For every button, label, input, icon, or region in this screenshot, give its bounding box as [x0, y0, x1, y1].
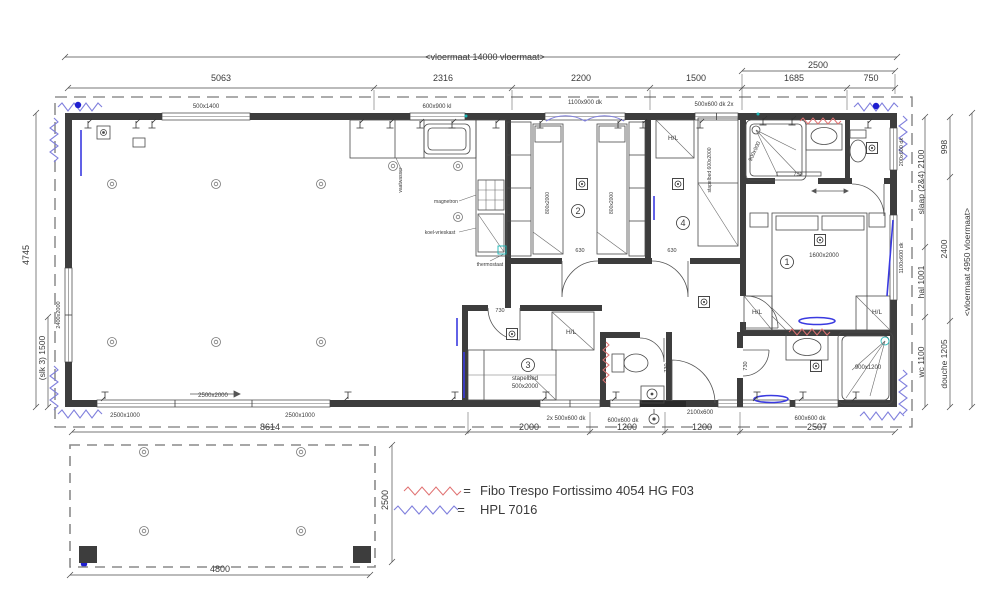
label-dim-wc-1100: wc 1100: [916, 346, 926, 378]
label-bed4-stapelbed: stapelbed 600x2000: [707, 147, 713, 192]
label-dim-8614: 8614: [260, 422, 280, 432]
dimension-lines: [33, 54, 975, 578]
wc-room: [612, 354, 664, 403]
label-legend-eq-1: =: [463, 483, 471, 498]
switch-icon: [612, 392, 620, 401]
blue-marker-dot: [75, 102, 81, 108]
ceiling-light-icon: [140, 448, 149, 457]
label-legend-eq-2: =: [457, 502, 465, 517]
ceiling-light-icon: [454, 162, 463, 171]
label-win-2500x1000-a: 2500x1000: [110, 413, 140, 419]
ceiling-light-icon: [108, 180, 117, 189]
label-dim-2400: 2400: [939, 239, 949, 258]
label-hl-room4: H/L: [668, 135, 679, 142]
label-bed2-right: 800x2000: [609, 192, 615, 214]
labels-layer: <vloermaat 14000 vloermaat>2500506323162…: [21, 52, 972, 574]
label-dim-floor-depth: <vloermaat 4950 vloermaat>: [962, 208, 972, 316]
terrace: [70, 445, 375, 567]
label-dim-hal-1001: hal 1001: [916, 265, 926, 298]
label-door-630-room4: 630: [667, 248, 676, 254]
switch-icon: [85, 119, 93, 128]
label-win-1100x600: 1100x600 dk: [899, 242, 905, 273]
label-bed2-left: 800x2000: [545, 192, 551, 214]
label-shower-bottom-size: 900x1200: [855, 365, 882, 371]
floorplan-svg: <vloermaat 14000 vloermaat>2500506323162…: [0, 0, 1000, 595]
hpl-zigzag: [50, 366, 58, 410]
kitchen: [350, 120, 506, 261]
label-win-500x600-2x: 500x600 dk 2x: [694, 102, 733, 108]
terrace-post: [353, 546, 371, 563]
terrace-post: [79, 546, 97, 563]
label-lbl-thermostaat: thermostaat: [477, 262, 504, 268]
hpl-zigzag: [899, 370, 907, 414]
label-door-730-wc: 730: [664, 363, 670, 372]
label-dim-2507: 2507: [807, 422, 827, 432]
hpl-zigzag: [58, 410, 102, 418]
smoke-detector-icon: [867, 143, 878, 154]
ceiling-lights: [108, 162, 463, 536]
label-lbl-koelvrieskast: koel-vrieskast: [425, 230, 456, 236]
label-dim-4745: 4745: [21, 245, 31, 265]
label-dim-2316: 2316: [433, 73, 453, 83]
label-dim-998: 998: [939, 140, 949, 154]
label-win-2x500x600: 2x 500x600 dk: [546, 416, 586, 422]
hpl-zigzag: [50, 118, 58, 162]
switch-icon: [537, 119, 545, 128]
label-win-2500x2000: 2500x2000: [198, 393, 228, 399]
floorplan-drawing: <vloermaat 14000 vloermaat>2500506323162…: [0, 0, 1000, 595]
label-legend-hpl: HPL 7016: [480, 502, 537, 517]
label-win-1100x900: 1100x900 dk: [568, 100, 603, 106]
label-dim-5063: 5063: [211, 73, 231, 83]
switch-icon: [133, 119, 141, 128]
switch-icon: [451, 392, 459, 401]
label-bed3-size: 500x2000: [512, 384, 539, 390]
ceiling-light-icon: [317, 180, 326, 189]
switch-icon: [149, 119, 157, 128]
legend-red-zigzag: [404, 487, 461, 495]
label-bed3-stapelbed: stapelbed: [512, 376, 538, 382]
label-room-2-number: 2: [575, 206, 580, 216]
label-win-2500x1000-b: 2500x1000: [285, 413, 315, 419]
smoke-detector-icon: [507, 329, 518, 340]
label-dim-750: 750: [863, 73, 878, 83]
ceiling-light-icon: [108, 338, 117, 347]
label-door-730-douche: 730: [743, 361, 749, 370]
label-dim-2000: 2000: [519, 422, 539, 432]
label-dim-slaap24-2100: slaap (2&4) 2100: [916, 149, 926, 214]
label-dim-4800: 4800: [210, 564, 230, 574]
ceiling-light-icon: [389, 162, 398, 171]
label-bed1-size: 1600x2000: [809, 253, 839, 259]
label-dim-2500-top: 2500: [808, 60, 828, 70]
legend-blue-zigzag: [394, 506, 458, 514]
label-dim-2200: 2200: [571, 73, 591, 83]
label-win-600x600-a: 600x600 dk: [607, 418, 639, 424]
switch-icon: [101, 392, 109, 401]
label-dim-1500: 1500: [686, 73, 706, 83]
label-win-500x1400: 500x1400: [193, 104, 220, 110]
bedroom-2-furniture: [507, 116, 645, 256]
ceiling-light-icon: [140, 527, 149, 536]
label-door-630-room2: 630: [575, 248, 584, 254]
meter-cabinet: [97, 126, 145, 147]
switch-icon: [799, 392, 807, 401]
radiator-mark: [799, 318, 835, 325]
label-dim-slk3-1500: (slk 3) 1500: [37, 336, 47, 381]
label-room-1-number: 1: [784, 257, 789, 267]
smoke-detector-icon: [577, 179, 588, 190]
hpl-zigzag: [860, 412, 904, 420]
ceiling-light-icon: [317, 338, 326, 347]
bedroom-1-furniture: [744, 213, 890, 330]
teal-marker-dot: [465, 115, 468, 118]
label-lbl-vaatwasser: vaatwasser: [398, 167, 404, 193]
label-legend-fibo: Fibo Trespo Fortissimo 4054 HG F03: [480, 483, 694, 498]
label-dim-1685: 1685: [784, 73, 804, 83]
label-hl-room3: H/L: [566, 329, 577, 336]
label-lbl-magnetron: magnetron: [434, 199, 458, 205]
label-dim-2500-terrace: 2500: [380, 490, 390, 510]
doors: [190, 172, 884, 407]
label-dim-1200-b: 1200: [692, 422, 712, 432]
switch-icon: [865, 119, 873, 128]
label-win-2400x2000: 2400x2000: [56, 301, 62, 328]
legend: [394, 487, 461, 514]
label-door-730-bath: 730: [793, 172, 802, 178]
label-win-600x900: 600x900 kl: [422, 104, 451, 110]
ceiling-light-icon: [297, 448, 306, 457]
label-room-4-number: 4: [680, 218, 685, 228]
label-win-600x600-b: 600x600 dk: [794, 416, 826, 422]
smoke-detector-icon: [699, 297, 710, 308]
teal-marker-dot: [757, 113, 760, 116]
smoke-detector-icon: [673, 179, 684, 190]
label-hl-room1-left: H/L: [752, 309, 763, 316]
label-win-200x600: 200x600 dk: [899, 138, 905, 167]
blue-marker-dot: [873, 103, 879, 109]
label-door-730-room3: 730: [495, 308, 504, 314]
smoke-detector-icon: [815, 235, 826, 246]
label-dim-floor-width: <vloermaat 14000 vloermaat>: [425, 52, 545, 62]
ceiling-light-icon: [212, 338, 221, 347]
entrance: [649, 409, 659, 424]
label-dim-douche-1205: douche 1205: [939, 339, 949, 388]
ceiling-light-icon: [212, 180, 221, 189]
label-win-2100x600: 2100x600: [687, 410, 714, 416]
label-room-3-number: 3: [525, 360, 530, 370]
smoke-detector-icon: [811, 361, 822, 372]
switch-icon: [344, 392, 352, 401]
ceiling-light-icon: [297, 527, 306, 536]
ceiling-light-icon: [454, 213, 463, 222]
label-hl-room1-right: H/L: [872, 309, 883, 316]
